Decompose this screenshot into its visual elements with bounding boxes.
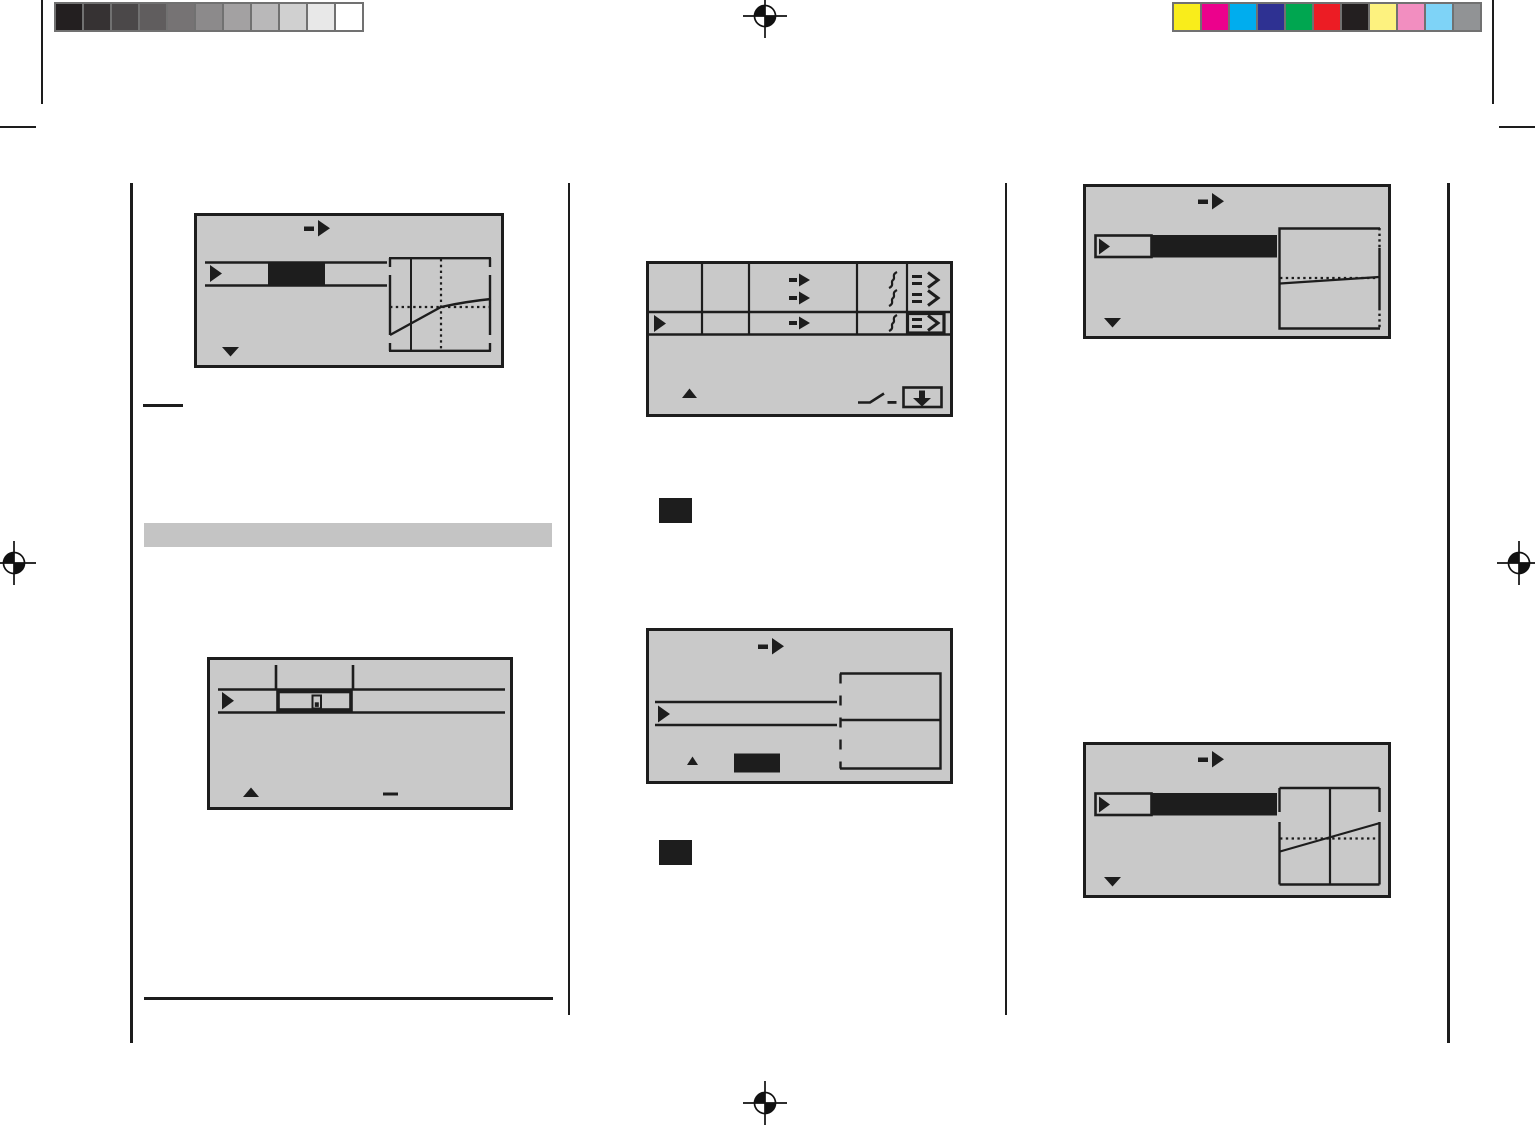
calibration-swatch (168, 4, 194, 30)
grayscale-calibration-strip (54, 2, 364, 32)
calibration-swatch (1230, 4, 1256, 30)
calibration-swatch (1258, 4, 1284, 30)
lcd-screen-dashed-panel (646, 628, 953, 784)
lcd-screen-flat-curve (1083, 184, 1391, 339)
trim-mark-top-left-horizontal (0, 126, 36, 128)
calibration-swatch (1454, 4, 1480, 30)
calibration-swatch (308, 4, 334, 30)
calibration-swatch (84, 4, 110, 30)
calibration-swatch (1286, 4, 1312, 30)
registration-mark-icon (0, 541, 36, 585)
menu-row (1096, 793, 1278, 816)
selected-value-block (1152, 235, 1278, 258)
calibration-swatch (196, 4, 222, 30)
registration-mark-icon (1497, 541, 1535, 585)
trim-mark-top-right-horizontal (1499, 126, 1535, 128)
lcd-screen-mix-table (646, 261, 953, 417)
menu-row (1096, 235, 1278, 258)
calibration-swatch (56, 4, 82, 30)
calibration-swatch (1202, 4, 1228, 30)
calibration-swatch (1370, 4, 1396, 30)
key-button-blank-2 (659, 840, 692, 865)
key-button-blank-1 (659, 498, 692, 523)
section-header-bar (144, 523, 552, 547)
calibration-swatch (140, 4, 166, 30)
minus-dash-icon (383, 793, 398, 796)
footer-rule (144, 997, 553, 1000)
selected-value-block (268, 262, 325, 286)
column-divider-2 (1005, 183, 1007, 1015)
color-calibration-strip (1172, 2, 1482, 32)
lcd-screen-linear-curve (1083, 742, 1391, 898)
calibration-swatch (1342, 4, 1368, 30)
column-divider-1 (568, 183, 570, 1015)
calibration-swatch (1426, 4, 1452, 30)
registration-mark-icon (743, 1081, 787, 1125)
calibration-swatch (336, 4, 362, 30)
trim-mark-top-left-vertical (41, 0, 43, 104)
calibration-swatch (1314, 4, 1340, 30)
calibration-swatch (224, 4, 250, 30)
registration-mark-icon (743, 0, 787, 38)
note-underline (143, 404, 183, 407)
trim-mark-top-right-vertical (1492, 0, 1494, 104)
calibration-swatch (112, 4, 138, 30)
calibration-swatch (252, 4, 278, 30)
scanned-manual-page: { "calibration": { "grayscale_strip": ["… (0, 0, 1535, 1121)
selected-value-block (734, 754, 780, 773)
calibration-swatch (280, 4, 306, 30)
lcd-screen-trim-display (207, 657, 513, 810)
selected-value-block (1152, 793, 1278, 816)
calibration-swatch (1398, 4, 1424, 30)
page-right-border (1447, 183, 1450, 1043)
lcd-screen-rate-curve (194, 213, 504, 368)
calibration-swatch (1174, 4, 1200, 30)
page-left-border (130, 183, 133, 1043)
